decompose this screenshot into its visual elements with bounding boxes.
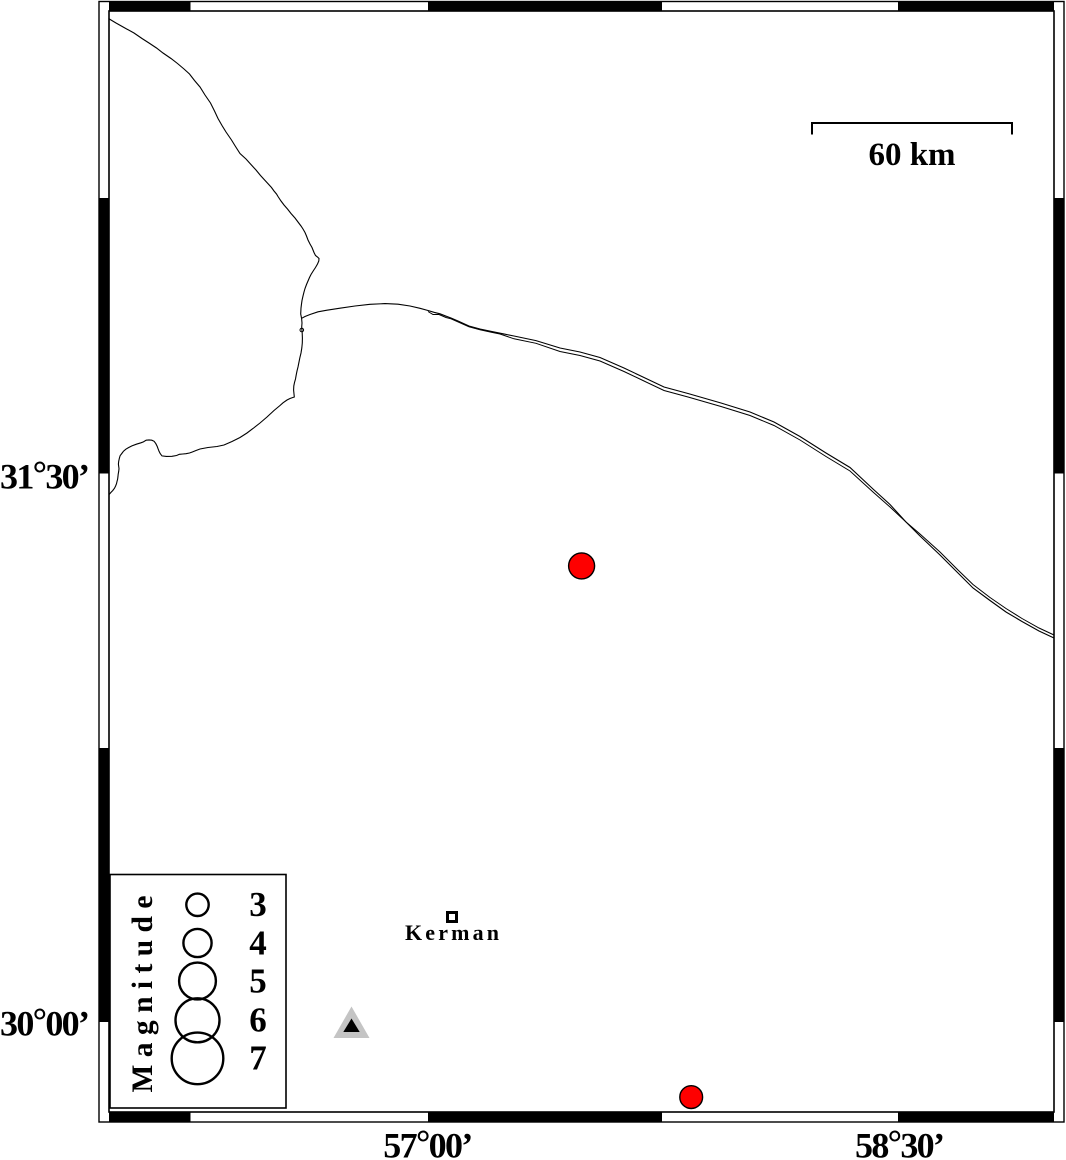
svg-text:5: 5 bbox=[249, 961, 267, 1000]
svg-text:7: 7 bbox=[249, 1039, 267, 1078]
svg-text:3: 3 bbox=[249, 885, 267, 924]
svg-text:60 km: 60 km bbox=[868, 137, 955, 173]
svg-text:6: 6 bbox=[249, 1001, 267, 1040]
svg-text:31°30’: 31°30’ bbox=[0, 454, 90, 497]
svg-text:58°30’: 58°30’ bbox=[855, 1123, 945, 1160]
svg-text:M a g n i t u d e: M a g n i t u d e bbox=[127, 896, 159, 1093]
svg-text:57°00’: 57°00’ bbox=[383, 1123, 473, 1160]
svg-text:30°00’: 30°00’ bbox=[0, 1001, 90, 1044]
svg-text:4: 4 bbox=[249, 923, 267, 962]
